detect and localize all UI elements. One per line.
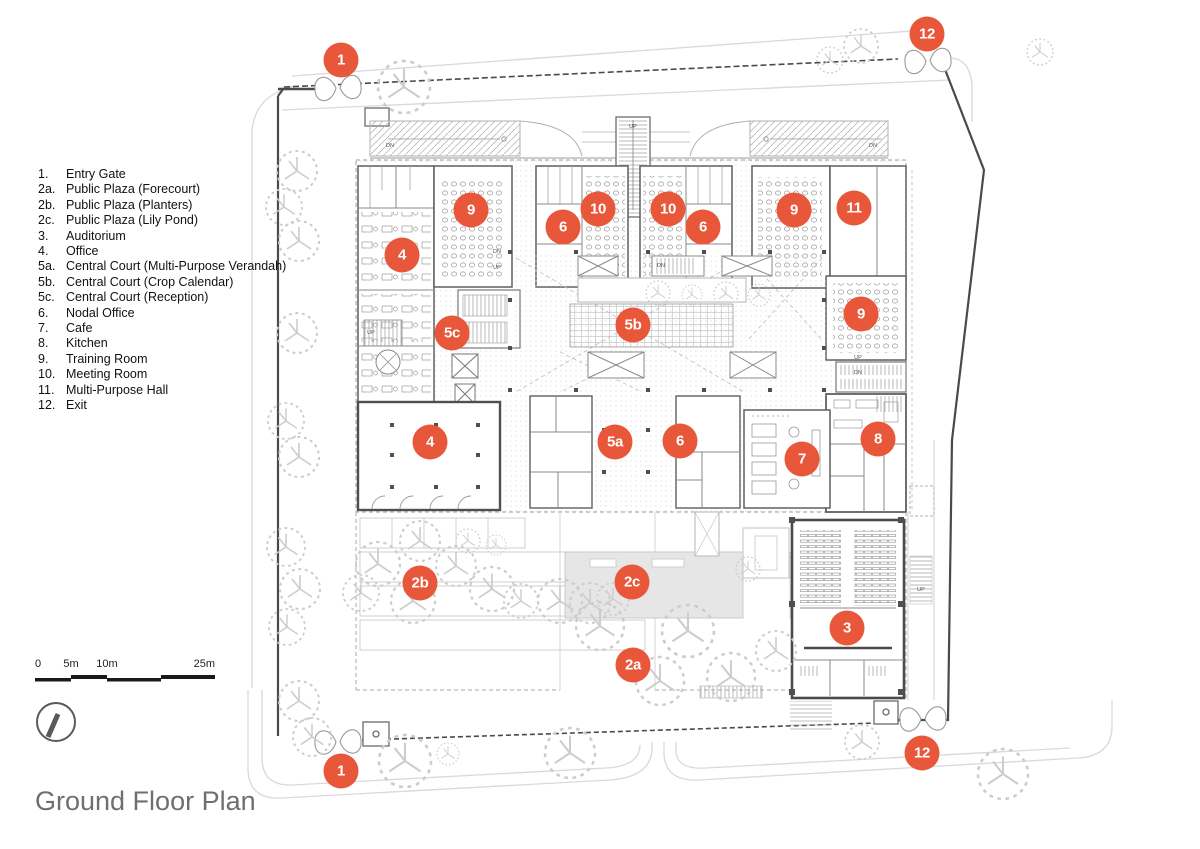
legend-item-label: Central Court (Crop Calendar) — [66, 275, 233, 290]
legend-item: 12.Exit — [38, 398, 286, 413]
exit-gate-icon — [904, 48, 952, 74]
legend-item: 3.Auditorium — [38, 229, 286, 244]
stair-direction-label: DN — [854, 370, 862, 376]
entry-gate-icon — [315, 730, 362, 755]
plan-marker: 4 — [413, 425, 448, 460]
legend-item: 5b.Central Court (Crop Calendar) — [38, 275, 286, 290]
legend-item-label: Public Plaza (Lily Pond) — [66, 213, 198, 228]
legend-item-label: Meeting Room — [66, 367, 147, 382]
legend-item-label: Training Room — [66, 352, 148, 367]
legend-item: 9.Training Room — [38, 352, 286, 367]
plan-marker: 9 — [844, 297, 879, 332]
legend-item-number: 10. — [38, 367, 66, 382]
scale-labels: 05m10m25m — [35, 658, 217, 672]
entry-gate-icon — [314, 75, 362, 101]
plan-marker: 6 — [663, 424, 698, 459]
legend-item-number: 3. — [38, 229, 66, 244]
legend-item: 2c.Public Plaza (Lily Pond) — [38, 213, 286, 228]
legend-item: 6.Nodal Office — [38, 306, 286, 321]
legend-item-label: Nodal Office — [66, 306, 135, 321]
legend-item: 2b.Public Plaza (Planters) — [38, 198, 286, 213]
plan-marker: 10 — [651, 192, 686, 227]
plan-marker: 12 — [910, 17, 945, 52]
service-rooms-south — [530, 396, 592, 508]
stair-direction-label: DN — [657, 263, 665, 269]
plan-marker: 9 — [777, 193, 812, 228]
legend-item-number: 11. — [38, 383, 66, 398]
plan-marker: 6 — [686, 210, 721, 245]
legend-item: 10.Meeting Room — [38, 367, 286, 382]
stair-direction-label: UP — [917, 587, 925, 593]
legend-item-number: 2a. — [38, 182, 66, 197]
stair-direction-label: UP — [629, 124, 637, 130]
legend-item: 5a.Central Court (Multi-Purpose Verandah… — [38, 259, 286, 274]
kitchen-block — [826, 394, 906, 512]
multi-purpose-hall — [830, 166, 906, 290]
plan-marker: 5a — [598, 425, 633, 460]
scale-label: 0 — [35, 658, 41, 670]
legend-item-number: 5b. — [38, 275, 66, 290]
legend-item-label: Central Court (Multi-Purpose Verandah) — [66, 259, 286, 274]
legend-item-number: 5c. — [38, 290, 66, 305]
stair-east — [836, 362, 906, 392]
plan-marker: 10 — [581, 192, 616, 227]
stair-direction-label: DN — [493, 249, 501, 255]
stair-direction-label: UP — [367, 330, 375, 336]
legend-item-number: 2c. — [38, 213, 66, 228]
legend-item: 1.Entry Gate — [38, 167, 286, 182]
legend-item-label: Entry Gate — [66, 167, 126, 182]
legend-item: 8.Kitchen — [38, 336, 286, 351]
legend-item: 11.Multi-Purpose Hall — [38, 383, 286, 398]
plan-marker: 8 — [861, 422, 896, 457]
plan-marker: 1 — [324, 754, 359, 789]
plan-marker: 2c — [615, 565, 650, 600]
north-arrow-icon — [33, 699, 79, 745]
plan-marker: 11 — [837, 191, 872, 226]
scale-bar-graphic — [35, 674, 217, 684]
stair-direction-label: DN — [869, 143, 877, 149]
stair-direction-label: DN — [386, 143, 394, 149]
legend-item-number: 8. — [38, 336, 66, 351]
legend-item: 4.Office — [38, 244, 286, 259]
plan-marker: 6 — [546, 210, 581, 245]
legend-item: 2a.Public Plaza (Forecourt) — [38, 182, 286, 197]
plan-marker: 5c — [435, 316, 470, 351]
plan-marker: 4 — [385, 238, 420, 273]
scale-label: 10m — [96, 658, 117, 670]
drawing-title: Ground Floor Plan — [35, 786, 256, 817]
legend-item-label: Public Plaza (Planters) — [66, 198, 192, 213]
plan-marker: 7 — [785, 442, 820, 477]
legend-item: 5c.Central Court (Reception) — [38, 290, 286, 305]
stair-direction-label: UP — [854, 355, 862, 361]
legend-item-number: 5a. — [38, 259, 66, 274]
plan-marker: 5b — [616, 308, 651, 343]
legend-item-label: Office — [66, 244, 98, 259]
crop-calendar-grid — [570, 304, 733, 347]
scale-label: 5m — [63, 658, 78, 670]
legend-item-label: Cafe — [66, 321, 92, 336]
scale-label: 25m — [194, 658, 215, 670]
plan-marker: 12 — [905, 736, 940, 771]
plan-marker: 2b — [403, 566, 438, 601]
legend-item-number: 6. — [38, 306, 66, 321]
legend-item-label: Multi-Purpose Hall — [66, 383, 168, 398]
legend-item-number: 4. — [38, 244, 66, 259]
legend-item: 7.Cafe — [38, 321, 286, 336]
legend-item-label: Public Plaza (Forecourt) — [66, 182, 200, 197]
legend-item-number: 1. — [38, 167, 66, 182]
plan-marker: 3 — [830, 611, 865, 646]
scale-bar: 05m10m25m — [35, 658, 217, 686]
legend-item-label: Exit — [66, 398, 87, 413]
legend-item-label: Auditorium — [66, 229, 126, 244]
plan-marker: 1 — [324, 43, 359, 78]
stair-direction-label: UP — [493, 265, 501, 271]
legend-item-number: 12. — [38, 398, 66, 413]
floor-plan-drawing — [0, 0, 1200, 849]
plan-marker: 9 — [454, 193, 489, 228]
legend-item-label: Central Court (Reception) — [66, 290, 208, 305]
legend: 1.Entry Gate2a.Public Plaza (Forecourt)2… — [38, 167, 286, 414]
legend-item-label: Kitchen — [66, 336, 108, 351]
legend-item-number: 2b. — [38, 198, 66, 213]
legend-item-number: 9. — [38, 352, 66, 367]
service-strip-east — [908, 170, 934, 700]
plan-marker: 2a — [616, 648, 651, 683]
legend-item-number: 7. — [38, 321, 66, 336]
